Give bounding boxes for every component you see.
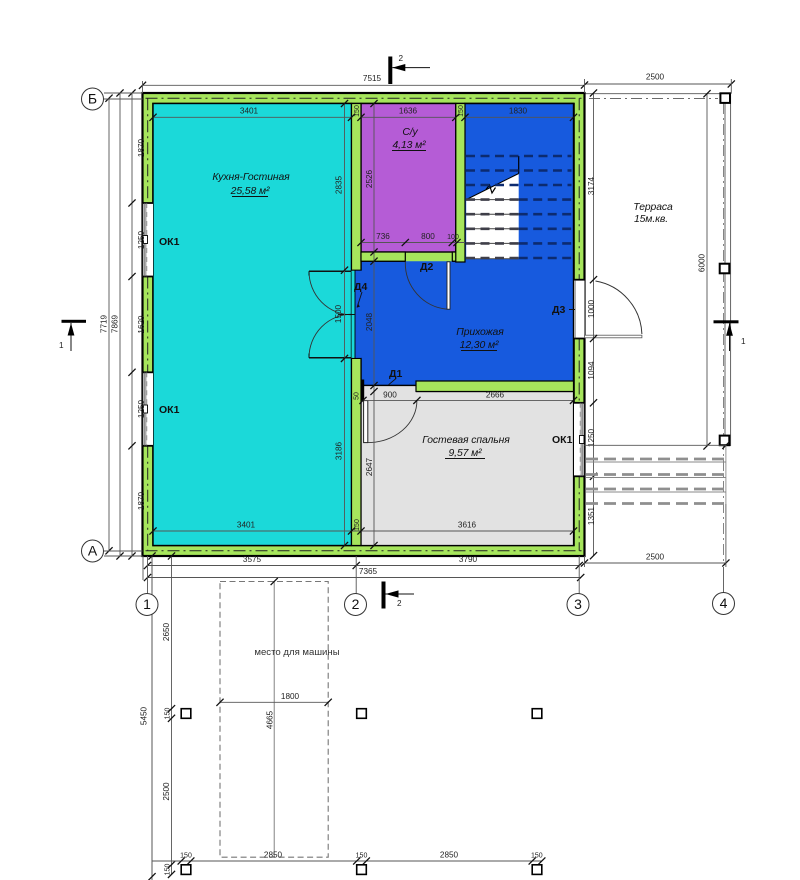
svg-text:1: 1 (59, 341, 64, 350)
svg-text:2: 2 (397, 599, 402, 608)
svg-text:150: 150 (165, 708, 172, 720)
svg-text:3575: 3575 (243, 555, 262, 564)
svg-text:150: 150 (356, 853, 368, 860)
svg-text:1870: 1870 (137, 491, 146, 510)
svg-text:Прихожая: Прихожая (456, 327, 504, 338)
svg-text:3174: 3174 (587, 176, 596, 195)
svg-text:150: 150 (354, 105, 361, 117)
svg-text:736: 736 (376, 232, 390, 241)
svg-text:800: 800 (421, 232, 435, 241)
svg-text:Б: Б (88, 91, 97, 107)
svg-text:4665: 4665 (266, 710, 275, 729)
svg-text:Д3: Д3 (552, 304, 565, 316)
svg-text:7365: 7365 (359, 567, 378, 576)
svg-text:1250: 1250 (137, 230, 146, 249)
svg-text:1: 1 (741, 337, 746, 346)
svg-text:3616: 3616 (458, 521, 477, 530)
svg-text:место для машины: место для машины (254, 647, 339, 658)
svg-text:2666: 2666 (486, 390, 505, 399)
svg-text:1636: 1636 (399, 107, 418, 116)
svg-text:Д4: Д4 (354, 281, 367, 293)
svg-text:2: 2 (352, 596, 360, 612)
svg-text:4,13 м²: 4,13 м² (393, 140, 427, 151)
svg-text:4: 4 (720, 595, 728, 611)
svg-text:1094: 1094 (587, 361, 596, 380)
svg-text:150: 150 (531, 853, 543, 860)
svg-text:Д2: Д2 (420, 261, 433, 273)
svg-text:3186: 3186 (335, 441, 344, 460)
svg-text:ОК1: ОК1 (159, 404, 180, 416)
svg-text:1351: 1351 (587, 506, 596, 525)
svg-text:150: 150 (180, 853, 192, 860)
svg-text:900: 900 (383, 390, 397, 399)
svg-text:25,58 м²: 25,58 м² (230, 186, 270, 197)
svg-text:7869: 7869 (111, 314, 120, 333)
svg-text:2850: 2850 (264, 851, 283, 860)
svg-text:2500: 2500 (646, 553, 665, 562)
svg-text:2850: 2850 (440, 851, 459, 860)
svg-text:ОК1: ОК1 (159, 236, 180, 248)
svg-text:2647: 2647 (365, 457, 374, 476)
svg-text:3401: 3401 (240, 107, 259, 116)
svg-text:1830: 1830 (509, 107, 528, 116)
svg-text:2: 2 (399, 54, 404, 63)
svg-text:1800: 1800 (281, 692, 300, 701)
svg-text:50: 50 (354, 392, 361, 400)
svg-text:Гостевая спальня: Гостевая спальня (422, 435, 510, 446)
svg-text:9,57 м²: 9,57 м² (449, 448, 483, 459)
svg-text:3: 3 (574, 596, 582, 612)
svg-text:12,30 м²: 12,30 м² (460, 340, 499, 351)
svg-text:2500: 2500 (646, 73, 665, 82)
svg-text:2650: 2650 (162, 622, 171, 641)
svg-text:1250: 1250 (587, 428, 596, 447)
svg-text:А: А (88, 543, 98, 559)
svg-text:2835: 2835 (335, 175, 344, 194)
svg-text:3790: 3790 (459, 555, 478, 564)
svg-text:1250: 1250 (137, 399, 146, 418)
svg-text:1000: 1000 (587, 299, 596, 318)
svg-text:2048: 2048 (365, 312, 374, 331)
svg-text:Кухня-Гостиная: Кухня-Гостиная (212, 172, 290, 183)
svg-text:7719: 7719 (100, 314, 109, 333)
svg-text:150: 150 (165, 864, 172, 876)
svg-text:100: 100 (447, 234, 459, 241)
svg-text:1: 1 (143, 596, 151, 612)
svg-text:1870: 1870 (137, 138, 146, 157)
svg-text:1629: 1629 (137, 315, 146, 334)
svg-text:150: 150 (354, 519, 361, 531)
svg-text:С/у: С/у (402, 127, 418, 138)
svg-text:5450: 5450 (140, 706, 149, 725)
svg-text:150: 150 (458, 105, 465, 117)
svg-text:6000: 6000 (698, 253, 707, 272)
svg-text:Терраса: Терраса (633, 202, 673, 213)
svg-text:15м.кв.: 15м.кв. (634, 214, 668, 225)
svg-text:3401: 3401 (237, 521, 256, 530)
svg-text:1500: 1500 (334, 304, 343, 323)
svg-text:2526: 2526 (365, 169, 374, 188)
svg-text:2500: 2500 (162, 782, 171, 801)
svg-text:ОК1: ОК1 (552, 434, 573, 446)
svg-text:7515: 7515 (363, 74, 382, 83)
